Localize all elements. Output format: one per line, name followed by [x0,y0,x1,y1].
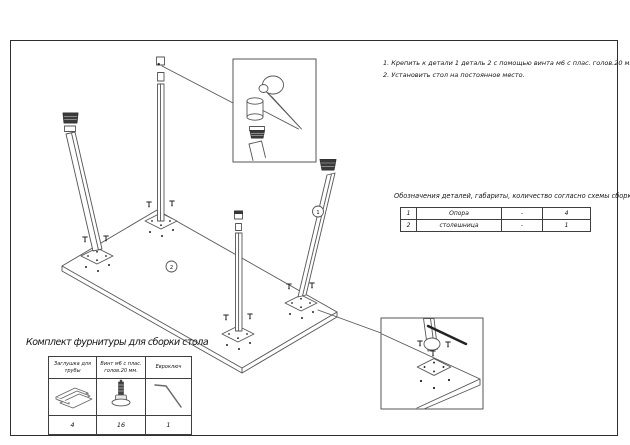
assembly-instructions: 1. Крепить к детали 1 деталь 2 с помощью… [383,58,625,81]
hardware-qty-hex-key: 1 [146,416,192,435]
part-dims: - [502,208,543,220]
hardware-label-plug: Заглушка для трубы [49,357,97,379]
table-leg-right [298,160,336,298]
part-name: Опора [417,208,502,220]
screw-icon [104,379,138,411]
part-number: 2 [401,220,417,232]
hardware-qty-plug: 4 [49,416,97,435]
balloon-label-tabletop: 2 [166,261,177,272]
hardware-qty-screw: 16 [97,416,146,435]
part-name: столешница [417,220,502,232]
instruction-line-1: 1. Крепить к детали 1 деталь 2 с помощью… [383,58,625,70]
part-dims: - [502,220,543,232]
parts-table-row: 1 Опора - 4 [401,208,591,220]
hex-key-icon [149,380,189,410]
hardware-header-row: Заглушка для трубы Винт м6 с плас. голов… [49,357,192,379]
parts-table-row: 2 столешница - 1 [401,220,591,232]
leg-socket-ring [424,338,440,350]
hardware-label-hex-key: Евроключ [146,357,192,379]
pipe-plug-detail [250,127,265,139]
parts-table-title: Обозначения деталей, габариты, количеств… [394,192,630,200]
table-leg-back [157,57,165,221]
table-leg-left [63,113,102,251]
part-quantity: 1 [543,220,591,232]
svg-text:2: 2 [170,265,174,271]
table-leg-front [235,211,243,331]
tabletop-panel [62,210,337,373]
callout-leader-bottom [318,310,381,333]
part-quantity: 4 [543,208,591,220]
hardware-icons-row [49,379,192,416]
instruction-sheet-page: 1 2 [0,0,630,445]
svg-text:1: 1 [316,210,320,216]
instruction-line-2: 2. Установить стол на постоянное место. [383,70,625,82]
hardware-kit-table: Заглушка для трубы Винт м6 с плас. голов… [48,356,192,435]
callout-leader-top [162,66,233,103]
callout-box-mounting-detail [381,318,483,409]
parts-table: 1 Опора - 4 2 столешница - 1 [400,207,591,232]
hardware-qty-row: 4 16 1 [49,416,192,435]
callout-box-screw-detail [233,59,316,162]
pipe-plug-icon [52,380,94,410]
hardware-label-screw: Винт м6 с плас. голов.20 мм. [97,357,146,379]
balloon-label-leg: 1 [313,206,324,217]
part-number: 1 [401,208,417,220]
hardware-kit-title: Комплект фурнитуры для сборки стола [26,337,208,348]
